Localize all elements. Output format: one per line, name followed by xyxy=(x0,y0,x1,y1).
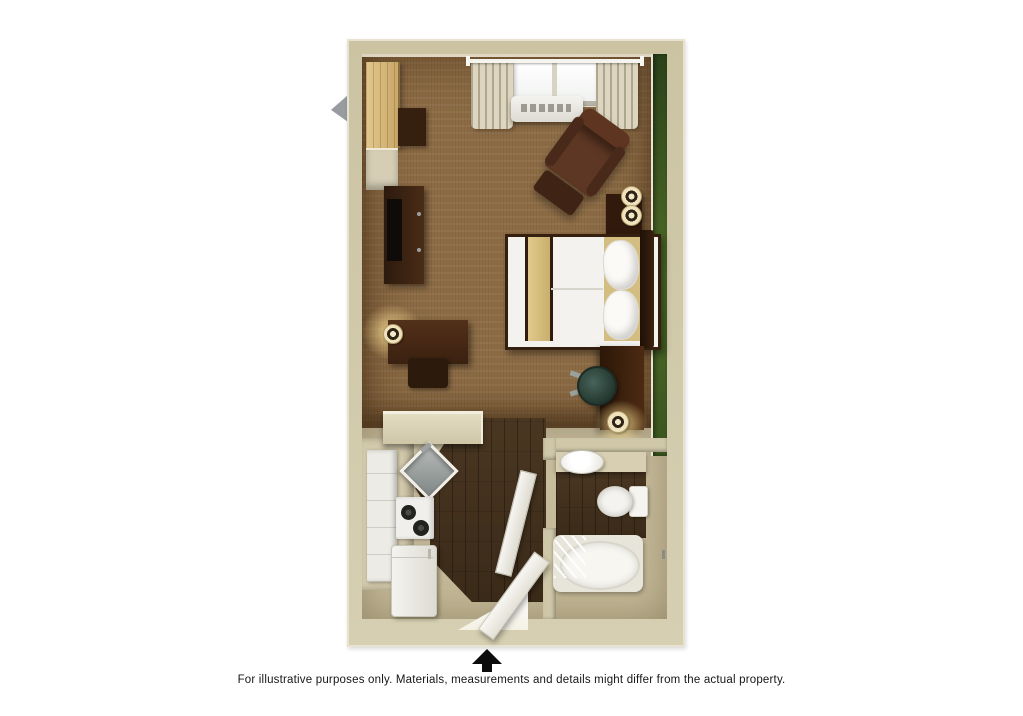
headboard xyxy=(640,230,654,348)
cooktop-burner xyxy=(401,505,416,520)
desk-chair xyxy=(408,358,448,388)
bathroom-left-wall-stub xyxy=(543,438,556,460)
curtain-rod-endcap xyxy=(466,56,470,66)
floor-plan-image: For illustrative purposes only. Material… xyxy=(0,0,1023,716)
north-arrow-head xyxy=(472,649,502,664)
side-cabinet xyxy=(398,108,426,146)
curtain-rod-endcap xyxy=(640,56,644,66)
peninsula-counter xyxy=(383,411,483,444)
closet xyxy=(366,62,400,148)
refrigerator-handle xyxy=(428,549,431,559)
curtain-rod xyxy=(468,59,642,63)
cooktop-burner xyxy=(413,520,429,536)
bed-runner-stripe xyxy=(525,237,553,341)
table-lamp xyxy=(621,186,642,207)
north-arrow-icon xyxy=(472,649,502,673)
top-wall-inner-highlight xyxy=(362,54,653,57)
tv-stand-knob xyxy=(417,248,421,252)
shower-curtain xyxy=(554,536,586,578)
tv-stand-knob xyxy=(417,212,421,216)
toilet-bowl xyxy=(597,486,633,517)
vanity-sink xyxy=(560,450,604,474)
desk-lamp xyxy=(383,324,403,344)
table-lamp xyxy=(607,411,629,433)
curtain-left xyxy=(471,61,513,129)
wardrobe-shelf xyxy=(366,148,398,190)
office-chair xyxy=(577,366,617,406)
bathroom-top-wall xyxy=(545,438,667,452)
duvet-crease xyxy=(551,288,603,290)
towel-bar xyxy=(662,550,665,559)
exterior-corner-shadow xyxy=(331,95,348,122)
table-lamp xyxy=(621,205,642,226)
disclaimer-caption: For illustrative purposes only. Material… xyxy=(0,674,1023,686)
television-screen xyxy=(387,199,402,261)
ptac-vent xyxy=(521,104,571,112)
north-arrow-stem xyxy=(482,663,492,672)
